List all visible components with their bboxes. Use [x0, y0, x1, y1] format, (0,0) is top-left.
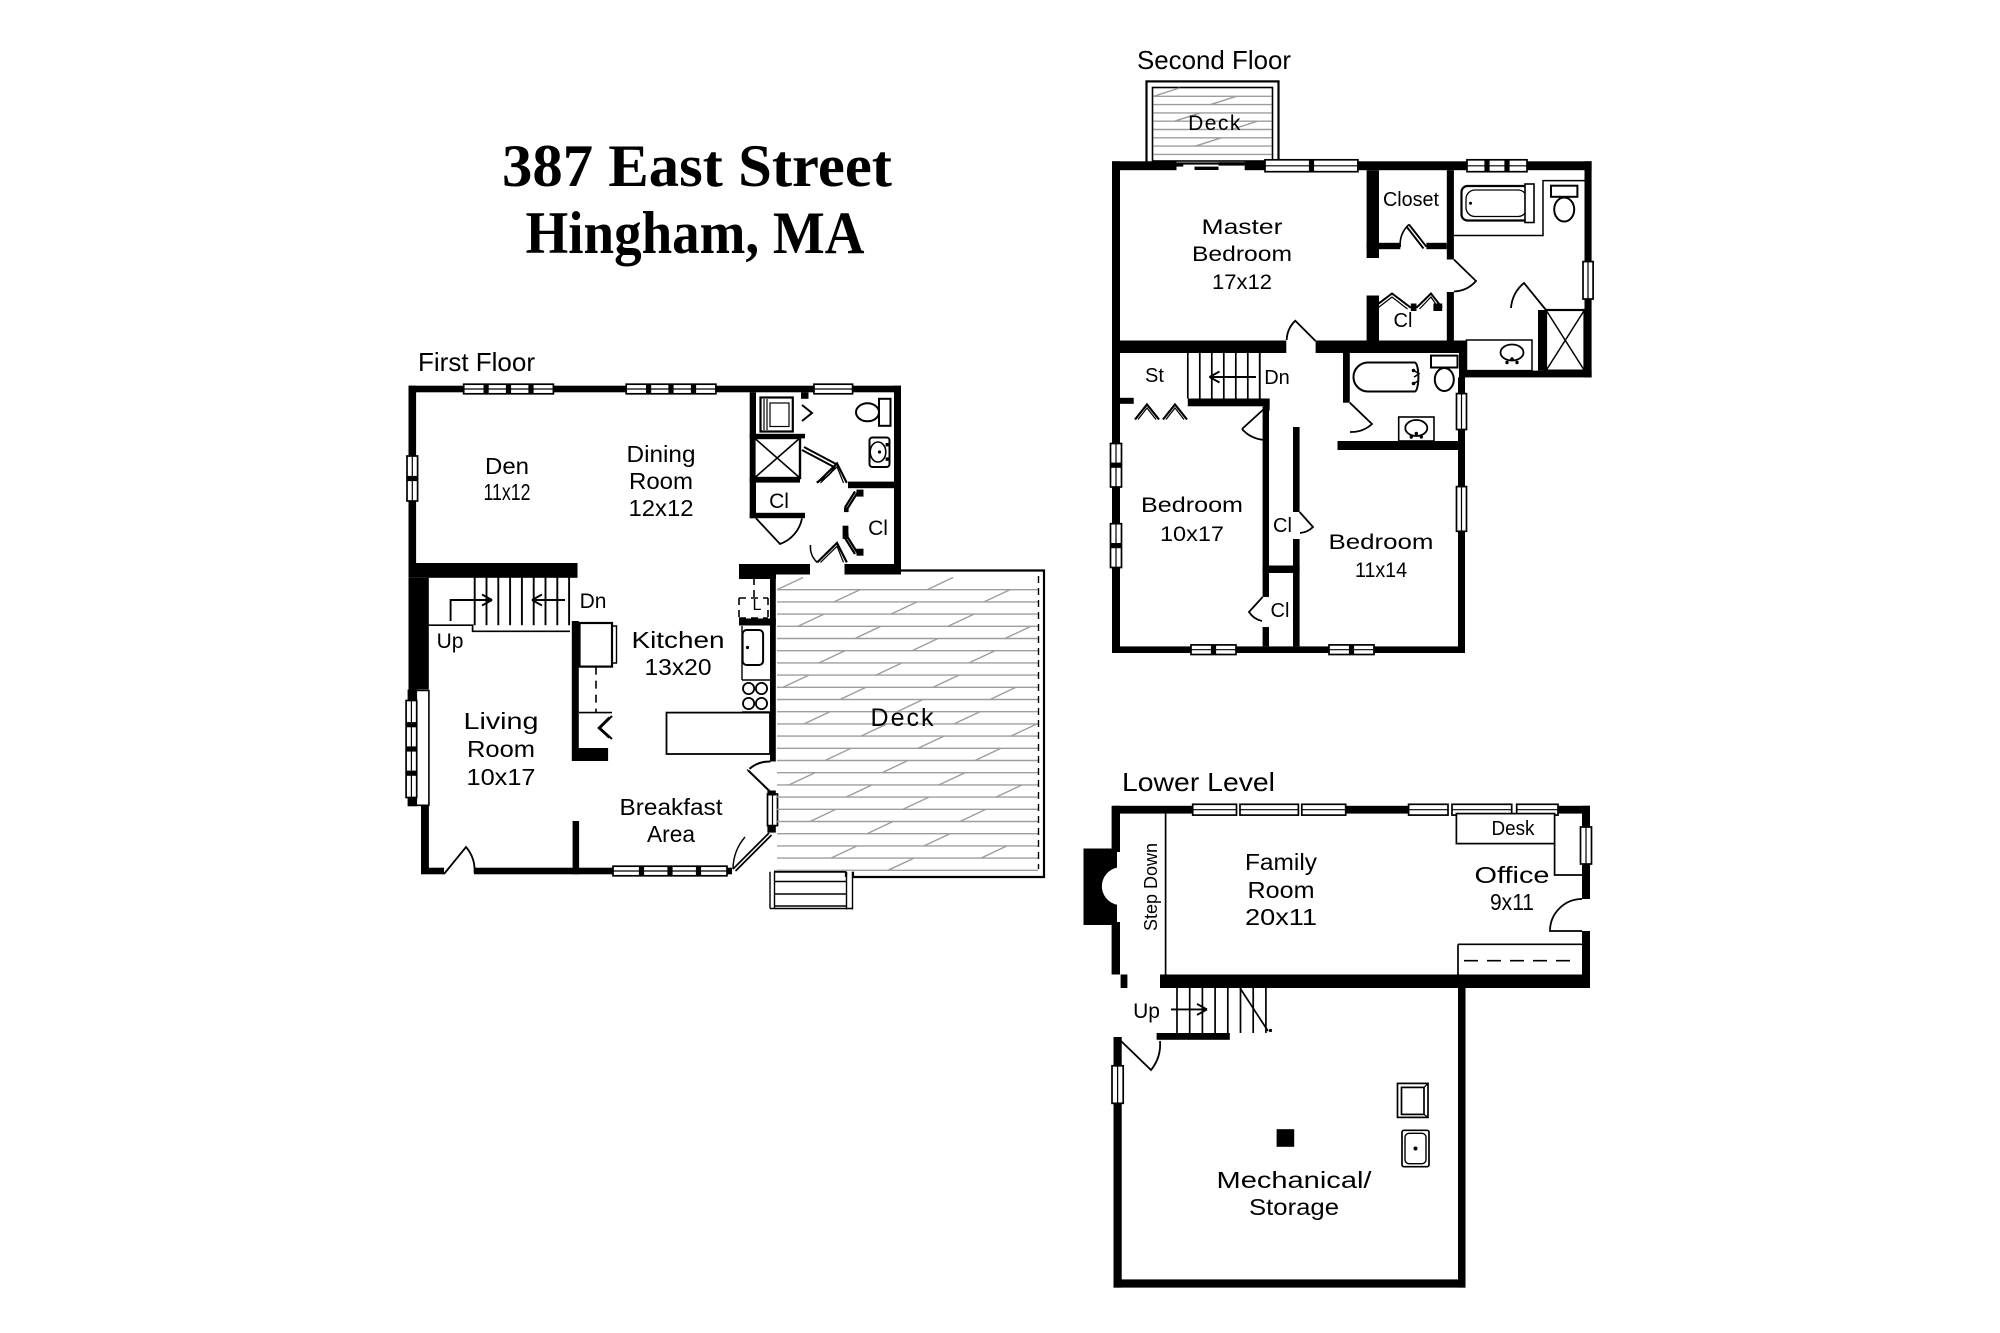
svg-text:387 East Street: 387 East Street — [502, 133, 892, 199]
svg-text:Family: Family — [1245, 849, 1318, 875]
svg-text:Bedroom: Bedroom — [1329, 530, 1434, 554]
svg-text:Storage: Storage — [1249, 1194, 1339, 1220]
svg-text:Dining: Dining — [627, 441, 696, 467]
svg-text:Second Floor: Second Floor — [1137, 45, 1291, 75]
svg-text:First Floor: First Floor — [418, 347, 535, 377]
svg-text:Dn: Dn — [580, 590, 607, 613]
svg-text:17x12: 17x12 — [1212, 270, 1272, 294]
svg-text:20x11: 20x11 — [1245, 904, 1317, 930]
svg-text:Cl: Cl — [868, 517, 888, 540]
svg-text:Breakfast: Breakfast — [620, 794, 724, 820]
svg-text:10x17: 10x17 — [1160, 522, 1224, 546]
svg-text:11x12: 11x12 — [484, 479, 531, 505]
svg-text:Den: Den — [485, 453, 529, 479]
svg-text:Cl: Cl — [769, 490, 789, 513]
svg-text:9x11: 9x11 — [1490, 889, 1534, 915]
svg-text:Mechanical/: Mechanical/ — [1217, 1167, 1373, 1193]
svg-text:Up: Up — [437, 630, 464, 653]
svg-text:Up: Up — [1133, 1000, 1160, 1023]
svg-text:Office: Office — [1475, 862, 1550, 888]
svg-text:10x17: 10x17 — [467, 764, 536, 790]
svg-text:Room: Room — [467, 736, 535, 762]
svg-text:Cl: Cl — [1271, 600, 1290, 622]
svg-text:12x12: 12x12 — [629, 495, 694, 521]
svg-text:Kitchen: Kitchen — [632, 627, 725, 653]
svg-text:Deck: Deck — [1188, 112, 1242, 135]
svg-text:Living: Living — [464, 708, 539, 734]
svg-text:11x14: 11x14 — [1355, 558, 1407, 582]
svg-text:Deck: Deck — [871, 704, 936, 732]
svg-text:13x20: 13x20 — [645, 654, 712, 680]
svg-text:Desk: Desk — [1492, 818, 1536, 840]
svg-text:Bedroom: Bedroom — [1192, 242, 1292, 266]
svg-text:Dn: Dn — [1264, 367, 1290, 389]
svg-text:Lower Level: Lower Level — [1122, 767, 1275, 797]
svg-text:Area: Area — [647, 821, 695, 847]
svg-text:Cl: Cl — [1273, 515, 1292, 537]
svg-text:Room: Room — [1248, 877, 1315, 903]
svg-text:St: St — [1145, 365, 1164, 387]
svg-text:Hingham, MA: Hingham, MA — [526, 200, 865, 266]
svg-text:Closet: Closet — [1383, 189, 1439, 211]
svg-text:Room: Room — [629, 468, 693, 494]
svg-text:Step Down: Step Down — [1141, 843, 1161, 931]
svg-text:Master: Master — [1202, 215, 1283, 239]
svg-text:Cl: Cl — [1394, 310, 1413, 332]
svg-text:Bedroom: Bedroom — [1141, 493, 1243, 517]
svg-text:L: L — [753, 597, 762, 614]
